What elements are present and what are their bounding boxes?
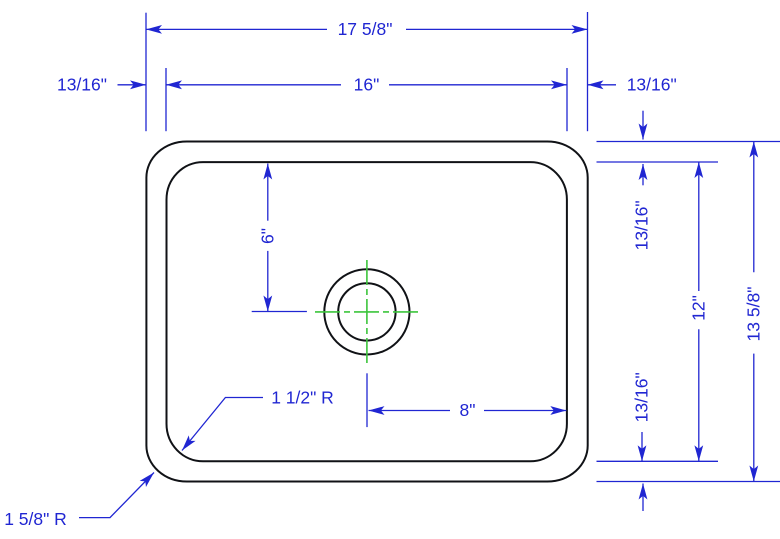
svg-text:1 1/2" R: 1 1/2" R [271, 387, 334, 407]
svg-text:13/16": 13/16" [627, 75, 677, 95]
svg-text:12": 12" [688, 295, 708, 321]
svg-text:1 5/8" R: 1 5/8" R [4, 509, 67, 529]
svg-text:13/16": 13/16" [632, 372, 652, 422]
svg-text:16": 16" [354, 75, 380, 95]
svg-text:13/16": 13/16" [57, 75, 107, 95]
svg-text:13 5/8": 13 5/8" [743, 287, 763, 342]
svg-text:17 5/8": 17 5/8" [338, 19, 393, 39]
svg-text:8": 8" [460, 400, 476, 420]
svg-text:6": 6" [257, 228, 277, 244]
svg-text:13/16": 13/16" [632, 200, 652, 250]
